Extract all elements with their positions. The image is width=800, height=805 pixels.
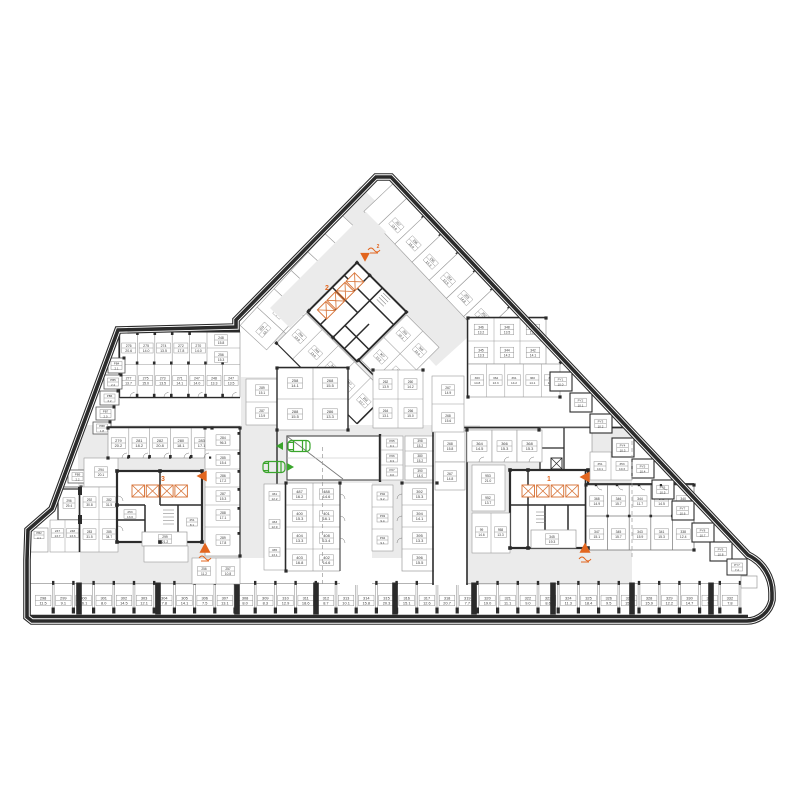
- svg-text:13.5: 13.5: [160, 349, 167, 353]
- svg-text:17.1: 17.1: [220, 516, 227, 520]
- svg-text:PY4: PY4: [620, 443, 626, 447]
- svg-text:13.4: 13.4: [323, 538, 331, 543]
- svg-text:14.6: 14.6: [323, 560, 331, 565]
- svg-text:338: 338: [680, 530, 686, 534]
- svg-text:13.5: 13.5: [504, 331, 511, 335]
- svg-text:15.1: 15.1: [593, 535, 600, 539]
- svg-text:362: 362: [493, 376, 498, 380]
- svg-text:10.5: 10.5: [660, 491, 666, 495]
- svg-text:30.8: 30.8: [86, 503, 92, 507]
- svg-text:14.1: 14.1: [530, 354, 537, 358]
- svg-text:13.1: 13.1: [382, 414, 389, 418]
- svg-text:351: 351: [597, 462, 602, 466]
- svg-text:13.7: 13.7: [54, 534, 60, 538]
- svg-text:2.0: 2.0: [103, 415, 107, 419]
- svg-text:14.0: 14.0: [143, 349, 150, 353]
- svg-text:14.2: 14.2: [407, 385, 414, 389]
- svg-text:P93: P93: [380, 514, 386, 518]
- svg-text:16.2: 16.2: [296, 494, 304, 499]
- svg-text:PY2: PY2: [578, 398, 584, 402]
- svg-text:18.4: 18.4: [585, 601, 593, 606]
- svg-text:9.1: 9.1: [61, 601, 66, 606]
- svg-text:283: 283: [87, 530, 93, 534]
- svg-text:PY7: PY7: [734, 563, 740, 567]
- svg-text:PY3: PY3: [598, 419, 604, 423]
- svg-text:PB6: PB6: [107, 394, 113, 398]
- svg-text:PB5: PB5: [110, 378, 116, 382]
- svg-text:17.8: 17.8: [220, 541, 227, 545]
- svg-text:253: 253: [127, 510, 132, 514]
- svg-text:287: 287: [259, 409, 265, 413]
- svg-text:398: 398: [417, 439, 423, 443]
- svg-text:12.2: 12.2: [271, 497, 277, 501]
- svg-text:14.1: 14.1: [291, 383, 299, 388]
- svg-text:7.8: 7.8: [727, 601, 732, 606]
- svg-text:14.6: 14.6: [478, 533, 484, 537]
- svg-text:P06: P06: [389, 454, 395, 458]
- svg-text:99: 99: [480, 528, 484, 532]
- svg-text:PB7: PB7: [103, 409, 109, 413]
- svg-text:267: 267: [445, 386, 451, 390]
- svg-text:P94: P94: [380, 536, 386, 540]
- svg-text:12.1: 12.1: [140, 601, 148, 606]
- svg-text:14.1: 14.1: [416, 516, 424, 521]
- svg-text:18.1: 18.1: [177, 443, 185, 448]
- svg-text:10.7: 10.7: [700, 534, 706, 538]
- svg-text:16.8: 16.8: [296, 560, 304, 565]
- svg-text:287: 287: [220, 492, 226, 496]
- svg-text:10.2: 10.2: [598, 425, 604, 429]
- svg-text:15.5: 15.5: [291, 414, 299, 419]
- svg-text:15.3: 15.3: [658, 535, 665, 539]
- svg-text:14.2: 14.2: [504, 354, 511, 358]
- svg-text:PY8: PY8: [700, 528, 706, 532]
- svg-text:264: 264: [383, 409, 389, 413]
- svg-text:14.1: 14.1: [181, 601, 189, 606]
- svg-text:9.0: 9.0: [525, 601, 531, 606]
- svg-text:20.7: 20.7: [443, 601, 451, 606]
- svg-text:9.1: 9.1: [380, 541, 385, 545]
- svg-text:268: 268: [445, 414, 451, 418]
- svg-text:12.9: 12.9: [282, 601, 290, 606]
- svg-text:274: 274: [161, 344, 167, 348]
- svg-text:2: 2: [377, 244, 380, 250]
- svg-text:13.9: 13.9: [382, 385, 389, 389]
- svg-text:13.3: 13.3: [416, 538, 424, 543]
- svg-text:14.7: 14.7: [686, 601, 694, 606]
- svg-text:16.1: 16.1: [323, 516, 331, 521]
- svg-text:270: 270: [195, 344, 201, 348]
- svg-text:340: 340: [680, 497, 686, 501]
- svg-text:2.1: 2.1: [114, 367, 118, 371]
- svg-text:247: 247: [194, 376, 200, 380]
- svg-text:10.8: 10.8: [718, 553, 724, 557]
- svg-text:18.6: 18.6: [302, 601, 310, 606]
- svg-text:361: 361: [511, 376, 516, 380]
- svg-text:15.3: 15.3: [220, 497, 227, 501]
- svg-text:15.3: 15.3: [296, 516, 304, 521]
- svg-text:353: 353: [619, 462, 624, 466]
- svg-text:285: 285: [106, 530, 112, 534]
- svg-text:13.3: 13.3: [211, 382, 218, 386]
- svg-text:14.5: 14.5: [476, 446, 484, 451]
- svg-text:390: 390: [417, 469, 423, 473]
- svg-text:10.3: 10.3: [620, 449, 626, 453]
- svg-text:21.0: 21.0: [485, 479, 492, 483]
- svg-text:20.3: 20.3: [383, 601, 391, 606]
- svg-text:20.2: 20.2: [115, 443, 123, 448]
- svg-text:342: 342: [530, 348, 536, 352]
- svg-text:247: 247: [55, 529, 60, 533]
- svg-text:14.1: 14.1: [529, 381, 535, 385]
- svg-text:272: 272: [178, 344, 184, 348]
- svg-text:11.2: 11.2: [201, 572, 207, 576]
- svg-text:21.2: 21.2: [162, 540, 169, 544]
- svg-text:19.0: 19.0: [484, 601, 492, 606]
- svg-text:15.7: 15.7: [615, 502, 622, 506]
- svg-text:345: 345: [616, 530, 622, 534]
- svg-text:14.8: 14.8: [447, 477, 454, 481]
- svg-text:P92: P92: [380, 492, 386, 496]
- svg-text:8.0: 8.0: [242, 601, 248, 606]
- svg-text:7.5: 7.5: [202, 601, 207, 606]
- svg-text:289: 289: [220, 536, 226, 540]
- svg-text:3: 3: [161, 476, 165, 483]
- svg-text:12.2: 12.2: [666, 601, 674, 606]
- svg-text:13.3: 13.3: [497, 533, 503, 537]
- svg-text:17.8: 17.8: [177, 349, 184, 353]
- svg-text:18.2: 18.2: [135, 443, 143, 448]
- svg-text:256: 256: [201, 567, 207, 571]
- svg-text:9.0: 9.0: [390, 473, 395, 477]
- svg-text:10.0: 10.0: [558, 383, 564, 387]
- svg-text:14.9: 14.9: [445, 391, 452, 395]
- svg-text:286: 286: [220, 474, 226, 478]
- svg-text:346: 346: [478, 325, 484, 329]
- svg-text:14.9: 14.9: [593, 502, 600, 506]
- svg-text:11.7: 11.7: [637, 502, 643, 506]
- svg-text:13.7: 13.7: [125, 382, 132, 386]
- svg-text:12.6: 12.6: [423, 601, 431, 606]
- svg-text:10.1: 10.1: [342, 601, 350, 606]
- svg-text:277: 277: [126, 376, 132, 380]
- svg-text:461: 461: [272, 492, 277, 496]
- svg-text:13.3: 13.3: [69, 534, 75, 538]
- svg-text:31.5: 31.5: [86, 535, 92, 539]
- svg-text:7.7: 7.7: [465, 601, 470, 606]
- svg-text:19.3: 19.3: [549, 540, 556, 544]
- svg-text:15.1: 15.1: [259, 391, 266, 395]
- svg-text:7.2: 7.2: [735, 568, 740, 572]
- svg-text:15.2: 15.2: [417, 444, 423, 448]
- svg-text:953: 953: [485, 474, 491, 478]
- svg-text:276: 276: [126, 344, 132, 348]
- svg-text:282: 282: [106, 498, 112, 502]
- svg-text:PB9: PB9: [75, 472, 81, 476]
- svg-text:15.3: 15.3: [501, 446, 509, 451]
- svg-text:PY9: PY9: [718, 547, 724, 551]
- svg-text:2.2: 2.2: [75, 478, 79, 482]
- svg-text:PY5: PY5: [640, 464, 646, 468]
- svg-text:PB8: PB8: [99, 424, 105, 428]
- svg-text:248: 248: [211, 376, 217, 380]
- svg-text:15.8: 15.8: [447, 447, 454, 451]
- svg-text:347: 347: [594, 530, 600, 534]
- svg-text:10.1: 10.1: [597, 467, 603, 471]
- svg-text:11.1: 11.1: [504, 601, 511, 606]
- svg-text:380: 380: [417, 454, 423, 458]
- svg-text:14.0: 14.0: [195, 349, 202, 353]
- svg-text:4.1: 4.1: [37, 536, 41, 540]
- svg-text:257: 257: [225, 567, 231, 571]
- svg-text:15.9: 15.9: [645, 601, 653, 606]
- svg-text:294: 294: [98, 468, 104, 472]
- svg-text:15.4: 15.4: [220, 461, 227, 465]
- svg-text:9.2: 9.2: [380, 497, 385, 501]
- svg-text:20.1: 20.1: [98, 473, 105, 477]
- svg-text:13.3: 13.3: [326, 414, 334, 419]
- svg-text:271: 271: [177, 376, 183, 380]
- svg-text:8.0: 8.0: [101, 601, 107, 606]
- svg-text:13.9: 13.9: [259, 414, 266, 418]
- svg-text:248: 248: [218, 336, 224, 340]
- svg-text:14.5: 14.5: [658, 502, 665, 506]
- svg-text:14.2: 14.2: [511, 381, 517, 385]
- svg-text:13.2: 13.2: [478, 331, 485, 335]
- svg-text:10.1: 10.1: [578, 404, 584, 408]
- svg-text:7.8: 7.8: [162, 601, 167, 606]
- svg-text:13.3: 13.3: [296, 538, 304, 543]
- svg-text:15.8: 15.8: [363, 601, 371, 606]
- svg-text:288: 288: [220, 511, 226, 515]
- svg-text:PY1: PY1: [558, 377, 564, 381]
- svg-text:344: 344: [504, 348, 510, 352]
- svg-text:2.4: 2.4: [111, 383, 115, 387]
- svg-text:341: 341: [659, 530, 665, 534]
- svg-text:8.3: 8.3: [263, 601, 268, 606]
- svg-text:363: 363: [475, 376, 480, 380]
- svg-text:256: 256: [218, 353, 224, 357]
- svg-text:299: 299: [162, 535, 168, 539]
- svg-text:34.7: 34.7: [106, 535, 112, 539]
- svg-text:13.0: 13.0: [127, 515, 133, 519]
- svg-text:29.4: 29.4: [66, 504, 72, 508]
- svg-text:296: 296: [66, 499, 72, 503]
- svg-text:P07: P07: [389, 468, 395, 472]
- svg-text:15.3: 15.3: [526, 446, 534, 451]
- svg-text:292: 292: [87, 498, 93, 502]
- svg-text:PB4: PB4: [114, 361, 120, 365]
- svg-text:346: 346: [616, 497, 622, 501]
- svg-text:14.6: 14.6: [323, 494, 331, 499]
- svg-text:96.3: 96.3: [220, 441, 227, 445]
- svg-text:343: 343: [637, 530, 643, 534]
- svg-text:12.9: 12.9: [271, 525, 277, 529]
- svg-text:15.7: 15.7: [615, 535, 622, 539]
- svg-text:14.0: 14.0: [193, 382, 200, 386]
- svg-text:345: 345: [478, 348, 484, 352]
- svg-text:247: 247: [228, 376, 234, 380]
- svg-text:958: 958: [498, 528, 504, 532]
- svg-text:13.3: 13.3: [478, 354, 485, 358]
- svg-text:344: 344: [637, 497, 643, 501]
- svg-text:267: 267: [447, 472, 453, 476]
- svg-text:289: 289: [259, 386, 265, 390]
- svg-text:15.5: 15.5: [416, 560, 424, 565]
- svg-text:9.1: 9.1: [390, 444, 395, 448]
- svg-text:14.5: 14.5: [120, 601, 128, 606]
- svg-text:13.3: 13.3: [493, 381, 499, 385]
- svg-text:15.0: 15.0: [142, 382, 149, 386]
- svg-text:266: 266: [408, 409, 414, 413]
- svg-text:13.5: 13.5: [228, 382, 235, 386]
- svg-text:15.8: 15.8: [218, 341, 225, 345]
- svg-text:952: 952: [485, 496, 491, 500]
- svg-text:8.6: 8.6: [545, 601, 550, 606]
- svg-text:465: 465: [272, 548, 277, 552]
- svg-text:15.6: 15.6: [445, 419, 452, 423]
- svg-text:13.1: 13.1: [271, 553, 277, 557]
- svg-text:10.6: 10.6: [680, 512, 686, 516]
- svg-text:284: 284: [220, 436, 226, 440]
- svg-text:9.5: 9.5: [606, 601, 611, 606]
- svg-text:10.4: 10.4: [640, 470, 646, 474]
- svg-text:463: 463: [272, 520, 277, 524]
- svg-text:13.1: 13.1: [221, 601, 229, 606]
- svg-text:251: 251: [189, 518, 194, 522]
- svg-text:17.2: 17.2: [220, 479, 227, 483]
- svg-text:20.6: 20.6: [125, 349, 132, 353]
- svg-text:12.4: 12.4: [680, 535, 687, 539]
- svg-text:11.3: 11.3: [565, 601, 572, 606]
- svg-text:13.7: 13.7: [485, 501, 492, 505]
- svg-text:11.5: 11.5: [39, 601, 46, 606]
- svg-text:8.1: 8.1: [190, 523, 195, 527]
- svg-text:345: 345: [549, 535, 555, 539]
- svg-text:14.8: 14.8: [474, 381, 480, 385]
- svg-text:2: 2: [325, 285, 329, 292]
- svg-text:1.8: 1.8: [100, 429, 104, 433]
- svg-text:262: 262: [383, 380, 389, 384]
- svg-text:10.3: 10.3: [619, 467, 625, 471]
- svg-text:13.5: 13.5: [159, 382, 166, 386]
- svg-text:268: 268: [447, 442, 453, 446]
- svg-text:368: 368: [594, 497, 600, 501]
- svg-text:260: 260: [408, 380, 414, 384]
- svg-text:2.2: 2.2: [107, 399, 111, 403]
- svg-text:15.3: 15.3: [218, 358, 225, 362]
- svg-text:17.1: 17.1: [198, 443, 206, 448]
- svg-text:275: 275: [143, 344, 149, 348]
- svg-text:31.5: 31.5: [106, 503, 112, 507]
- svg-text:360: 360: [530, 376, 535, 380]
- svg-text:15.9: 15.9: [637, 535, 644, 539]
- svg-text:248: 248: [70, 529, 75, 533]
- svg-text:273: 273: [160, 376, 166, 380]
- svg-text:20.8: 20.8: [156, 443, 164, 448]
- svg-text:9.3: 9.3: [390, 459, 395, 463]
- svg-text:PY7: PY7: [680, 506, 686, 510]
- svg-text:15.3: 15.3: [416, 494, 424, 499]
- svg-text:275: 275: [143, 376, 149, 380]
- svg-text:14.0: 14.0: [417, 474, 423, 478]
- svg-text:9.4: 9.4: [380, 519, 385, 523]
- svg-text:348: 348: [504, 325, 510, 329]
- svg-text:14.1: 14.1: [176, 382, 183, 386]
- svg-text:PB2: PB2: [36, 531, 42, 535]
- svg-text:8.7: 8.7: [323, 601, 328, 606]
- svg-text:285: 285: [220, 456, 226, 460]
- svg-text:15.0: 15.0: [407, 414, 414, 418]
- svg-text:15.5: 15.5: [326, 383, 334, 388]
- svg-text:P05: P05: [389, 439, 395, 443]
- svg-text:15.2: 15.2: [417, 459, 423, 463]
- svg-text:10.8: 10.8: [225, 572, 231, 576]
- svg-text:15.1: 15.1: [403, 601, 411, 606]
- svg-text:1: 1: [547, 476, 551, 483]
